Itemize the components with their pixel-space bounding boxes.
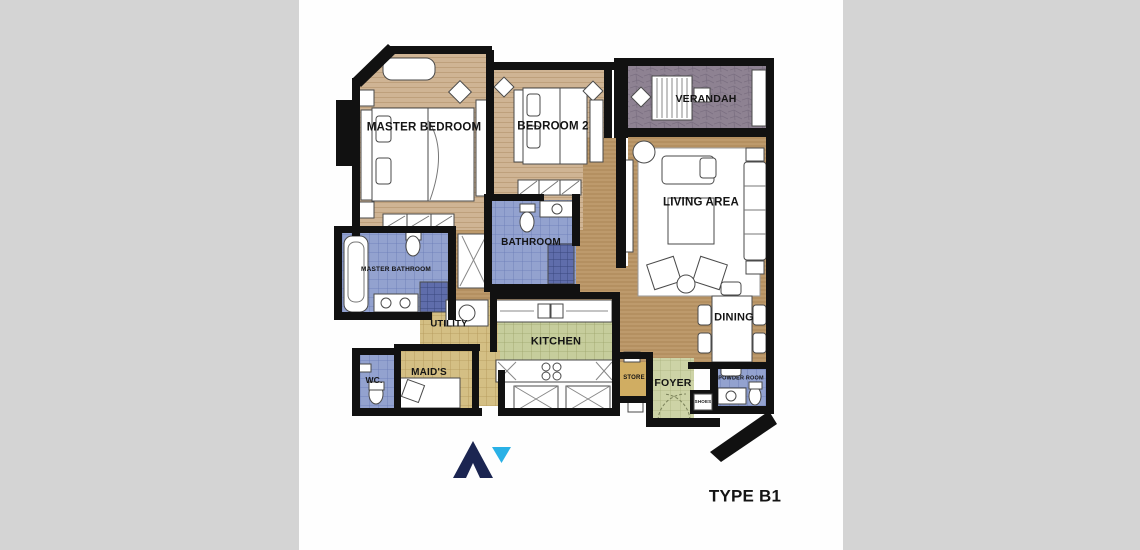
bathtub-icon [344,236,368,312]
room-label-wc: WC. [365,376,382,385]
foyer-floor [652,358,694,422]
room-label-maids: MAID'S [411,368,447,378]
room-label-bedroom-2: BEDROOM 2 [517,121,588,133]
floor-plan-drawing [0,0,1140,550]
kitchen-counter-bottom-icon [496,360,614,382]
plant-icon [633,141,655,163]
floor-plan-page: MASTER BEDROOM BEDROOM 2 VERANDAH LIVING… [0,0,1140,550]
shower-icon [420,282,448,312]
room-label-shoes: SHOES [695,400,712,405]
room-label-living-area: LIVING AREA [663,197,739,209]
room-label-store: STORE [623,375,645,381]
logo-triangle-icon [492,447,511,463]
shower-icon [548,244,574,284]
toilet-icon [520,204,535,212]
plan-type-caption: TYPE B1 [709,488,781,505]
closet-row-icon [518,180,581,195]
vanity-icon [540,201,574,217]
maid-bed-icon [400,378,460,408]
room-label-master-bathroom: MASTER BATHROOM [361,267,431,274]
room-label-utility: UTILITY [430,319,467,329]
logo-mountain-icon [453,441,493,478]
room-label-master-bedroom: MASTER BEDROOM [367,122,482,134]
sofa-icon [744,148,766,274]
vanity-icon [718,388,746,404]
room-label-powder-room: POWDER ROOM [718,376,764,382]
room-label-foyer: FOYER [654,378,691,389]
room-label-verandah: VERANDAH [675,94,736,105]
chaise-icon [383,58,435,80]
nightstand-icon [358,202,374,218]
brand-logo [453,441,511,478]
cabinet-icon [590,100,603,162]
room-label-dining: DINING [714,313,754,324]
nightstand-icon [358,90,374,106]
planter-icon [752,70,766,126]
kitchen-counter-top-icon [496,300,612,322]
round-table-icon [677,275,695,293]
room-label-kitchen: KITCHEN [531,337,581,348]
toilet-icon [749,387,761,405]
room-label-bathroom: BATHROOM [501,238,561,248]
